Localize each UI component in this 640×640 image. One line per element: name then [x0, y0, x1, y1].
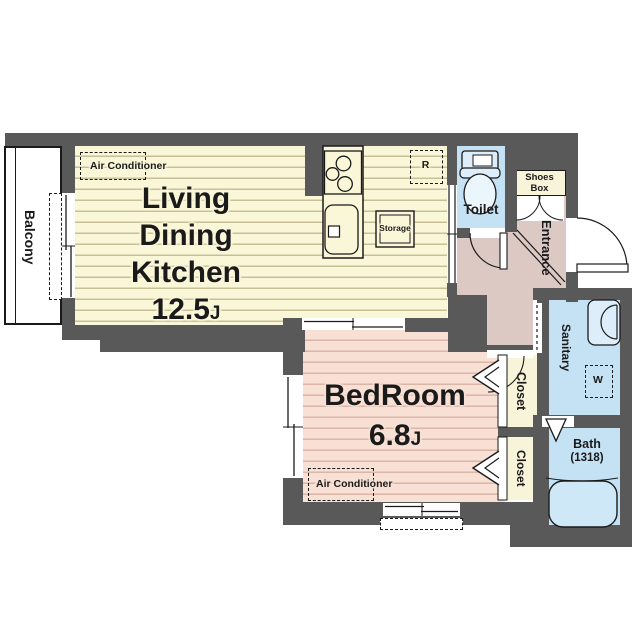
wall-closet-east — [537, 348, 549, 502]
wall-bath-south — [530, 525, 632, 547]
entrance-label: Entrance — [538, 200, 554, 295]
ldk-label-line2: Dining — [80, 217, 292, 254]
window-ldk-west — [62, 193, 75, 298]
balcony-shutter-dash — [49, 193, 62, 300]
closet-upper-label: Closet — [511, 358, 530, 425]
wall-bedroom-west-upper — [283, 325, 303, 375]
wall-toilet-south-stub — [457, 228, 470, 238]
hallway-lower-area — [482, 295, 533, 350]
bedroom-name: BedRoom — [313, 376, 477, 416]
bath-label: Bath (1318) — [553, 438, 621, 465]
washing-machine-label: W — [585, 374, 611, 386]
wall-hall-chunk — [448, 295, 487, 352]
ldk-size: 12.5J — [80, 291, 292, 332]
closet-lower-label: Closet — [511, 437, 530, 499]
wall-ldk-west-upper — [62, 146, 75, 193]
ac-bedroom-label: Air Conditioner — [316, 478, 392, 490]
wall-entrance-east-upper — [566, 133, 578, 218]
floor-plan: Living Dining Kitchen 12.5J BedRoom 6.8J… — [0, 0, 640, 640]
wall-ldk-west-lower — [62, 298, 75, 325]
ldk-label-line3: Kitchen — [80, 254, 292, 291]
bedroom-label: BedRoom 6.8J — [313, 376, 477, 460]
refrigerator-label: R — [410, 159, 441, 171]
wall-bedroom-west-lower — [283, 475, 303, 505]
sanitary-label: Sanitary — [558, 301, 574, 394]
wall-closet-mid — [498, 427, 549, 437]
wall-ldk-east-upper — [447, 146, 457, 185]
balcony-rail-line — [15, 148, 16, 323]
wall-entrance-top — [513, 146, 566, 170]
bedroom-south-eave-dash — [380, 518, 463, 530]
window-bedroom-west — [283, 375, 303, 478]
ac-ldk-label: Air Conditioner — [90, 160, 166, 172]
wall-hall-closet — [482, 345, 537, 351]
wall-top — [5, 133, 578, 146]
storage-label: Storage — [377, 223, 413, 233]
entrance-door — [566, 218, 628, 272]
ldk-label-line1: Living — [80, 180, 292, 217]
balcony-label: Balcony — [19, 188, 41, 286]
wall-bedroom-north-east — [405, 318, 448, 332]
shoes-box-label: Shoes Box — [513, 172, 566, 194]
ldk-label: Living Dining Kitchen 12.5J — [80, 180, 292, 332]
toilet-label: Toilet — [454, 202, 508, 217]
wall-kitchen-stub — [305, 146, 325, 196]
bedroom-size: 6.8J — [313, 416, 477, 460]
